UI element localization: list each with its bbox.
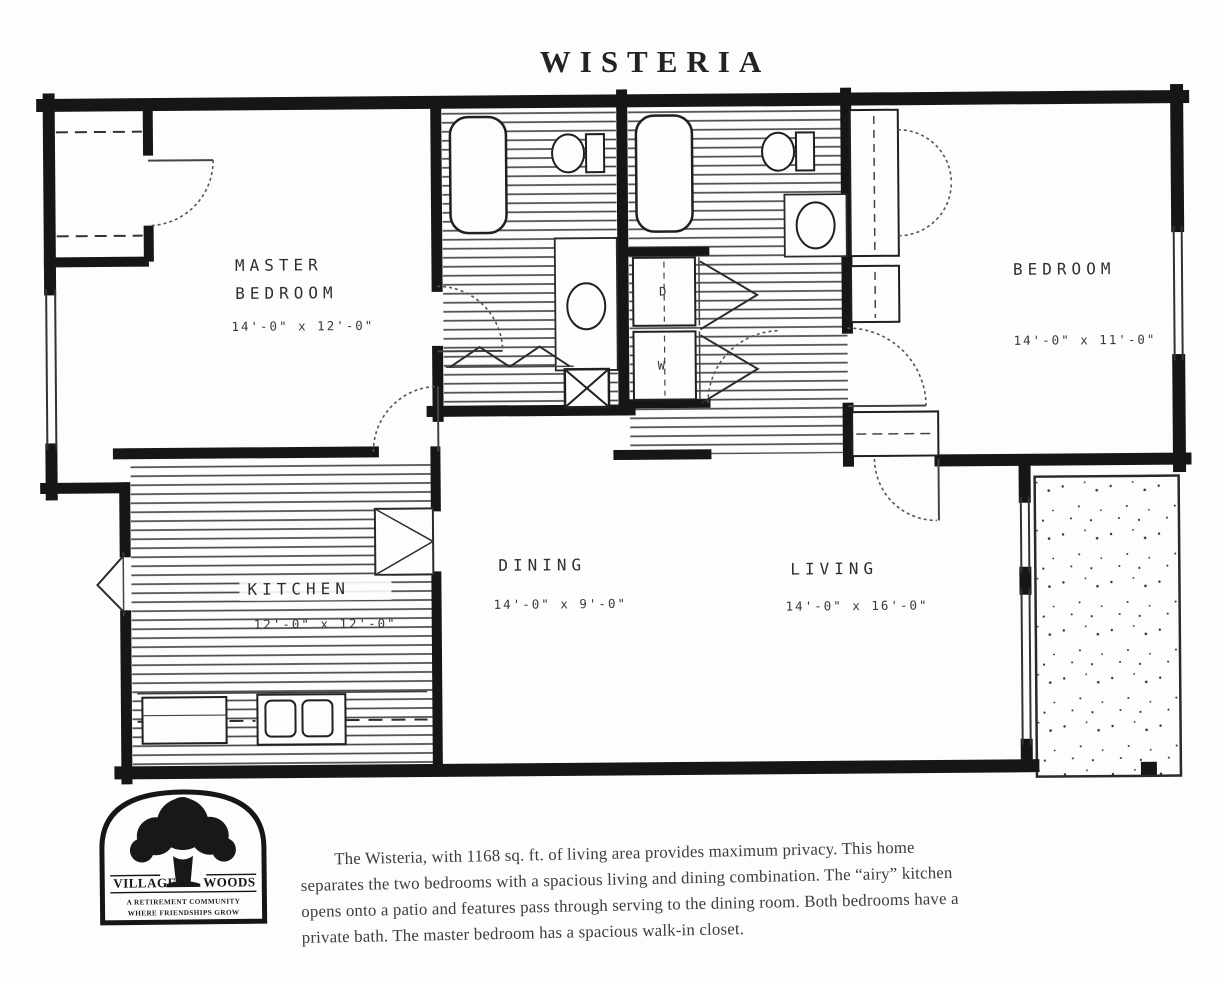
linen-shaft — [565, 369, 609, 407]
living-label: LIVING — [790, 559, 878, 579]
bedroom-dims: 14'-0" x 11'-0" — [1013, 332, 1156, 348]
bathtub-1 — [450, 117, 507, 233]
floor-plan: D W — [0, 0, 1224, 805]
living-sliding-doors — [1021, 467, 1031, 766]
logo-name-left: VILLAGE — [113, 875, 177, 891]
logo-tagline-2: WHERE FRIENDSHIPS GROW — [128, 908, 240, 917]
pass-through — [375, 508, 434, 574]
kitchen-label: KITCHEN — [247, 579, 350, 599]
hall-closet — [851, 266, 899, 322]
dining-label: DINING — [498, 555, 586, 575]
dryer-label: D — [659, 285, 666, 299]
floor-plan-drawing: D W — [0, 0, 1224, 805]
scanned-floor-plan-page: WISTERIA — [0, 0, 1224, 982]
master-bedroom-label-1: MASTER — [235, 255, 323, 275]
logo-name-right: WOODS — [203, 874, 255, 890]
bedroom-label: BEDROOM — [1013, 259, 1116, 279]
washer-label: W — [658, 359, 666, 373]
toilet-1 — [552, 134, 604, 172]
kitchen-patio-door — [97, 552, 126, 616]
toilet-2 — [762, 132, 814, 170]
living-dims: 14'-0" x 16'-0" — [786, 598, 929, 614]
master-bedroom-dims: 14'-0" x 12'-0" — [231, 318, 374, 334]
window-left — [46, 289, 56, 449]
logo-tagline-1: A RETIREMENT COMMUNITY — [127, 897, 241, 906]
sink-2 — [796, 202, 834, 248]
bedroom-closet — [850, 109, 952, 256]
range-box — [142, 697, 226, 744]
kitchen-dims: 12'-0" x 12'-0" — [254, 616, 397, 632]
description-text: The Wisteria, with 1168 sq. ft. of livin… — [300, 834, 962, 951]
master-bedroom-label-2: BEDROOM — [235, 283, 338, 303]
dining-dims: 14'-0" x 9'-0" — [494, 596, 627, 612]
coat-closet — [852, 411, 939, 521]
window-right — [1174, 226, 1183, 361]
patio — [1035, 476, 1181, 777]
sink-1 — [567, 283, 605, 329]
village-woods-logo: VILLAGE WOODS A RETIREMENT COMMUNITY WHE… — [95, 785, 274, 929]
master-walk-in-closet — [43, 98, 214, 262]
bathtub-2 — [636, 115, 693, 231]
kitchen-sink — [257, 694, 345, 745]
